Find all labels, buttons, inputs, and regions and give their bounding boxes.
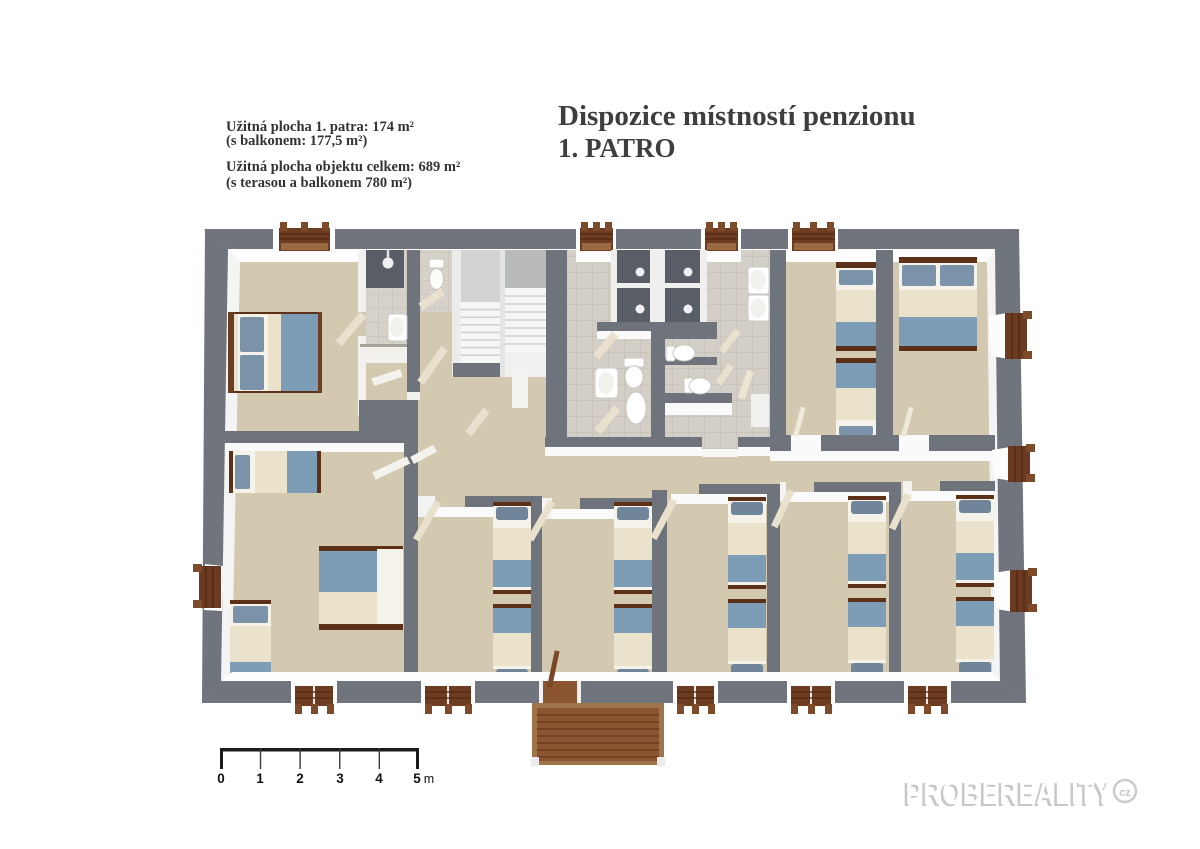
svg-text:5: 5 xyxy=(413,771,421,786)
svg-text:4: 4 xyxy=(375,771,383,786)
svg-text:3: 3 xyxy=(336,771,344,786)
svg-text:m: m xyxy=(424,772,434,786)
svg-text:cz: cz xyxy=(1119,787,1131,799)
svg-text:1: 1 xyxy=(256,771,264,786)
svg-text:0: 0 xyxy=(217,771,225,786)
svg-text:PROBEREALITY: PROBEREALITY xyxy=(906,775,1113,811)
svg-text:Dispozice místností penzionu: Dispozice místností penzionu xyxy=(558,100,916,132)
svg-text:Užitná plocha objektu celkem:: Užitná plocha objektu celkem: 689 m² xyxy=(226,159,460,175)
svg-text:(s balkonem: 177,5 m²): (s balkonem: 177,5 m²) xyxy=(226,133,367,149)
svg-text:(s terasou a balkonem 780 m²): (s terasou a balkonem 780 m²) xyxy=(226,175,412,191)
svg-text:2: 2 xyxy=(296,771,304,786)
svg-text:1. PATRO: 1. PATRO xyxy=(558,133,676,163)
